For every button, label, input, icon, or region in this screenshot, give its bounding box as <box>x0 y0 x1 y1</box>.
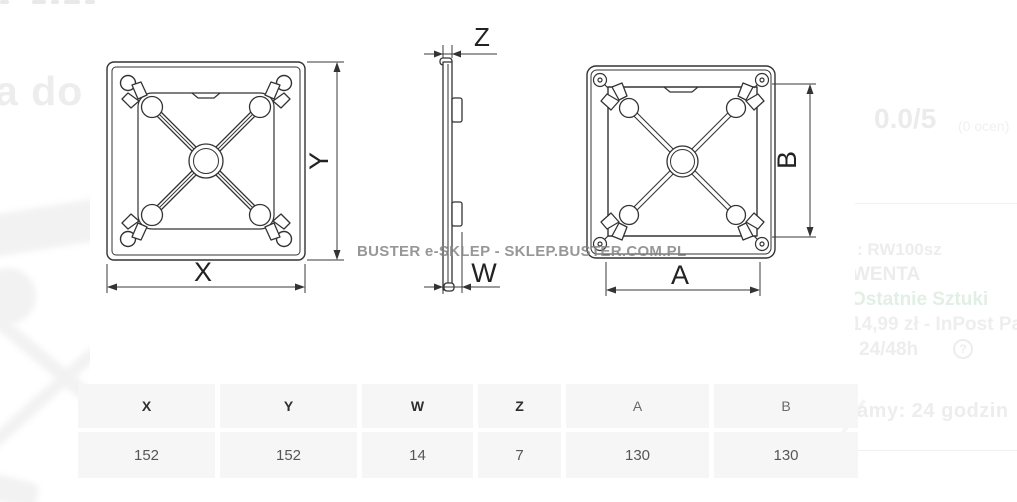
product-sku: : RW100sz <box>857 240 942 260</box>
product-brand: WENTA <box>855 264 920 286</box>
dimensions-table-header-row: X Y W Z A B <box>78 384 858 428</box>
dim-label-z: Z <box>474 22 490 52</box>
dispatch-info: łamy: 24 godzin <box>855 400 1009 423</box>
technical-drawing: X Y Z W <box>0 0 860 370</box>
dim-value-w: 14 <box>362 432 473 478</box>
product-info-ghost-panel: 0.0/5 (0 ocen) : RW100sz WENTA Ostatnie … <box>855 0 1017 502</box>
dim-label-w: W <box>471 258 497 288</box>
dim-label-y: Y <box>304 152 334 170</box>
dim-header-x: X <box>78 384 215 428</box>
delivery-time: 24/48h <box>859 339 918 361</box>
rating-score: 0.0/5 <box>874 103 936 135</box>
dimensions-table-value-row: 152 152 14 7 130 130 <box>78 432 858 478</box>
dim-header-a: A <box>566 384 709 428</box>
dim-header-y: Y <box>220 384 357 428</box>
dimensions-table: X Y W Z A B 152 152 14 7 130 130 <box>78 384 858 482</box>
front-view-clips <box>122 82 290 240</box>
dim-value-x: 152 <box>78 432 215 478</box>
dim-value-a: 130 <box>566 432 709 478</box>
dim-value-y: 152 <box>220 432 357 478</box>
dim-label-x: X <box>194 257 212 287</box>
dim-header-z: Z <box>478 384 561 428</box>
rating-count: (0 ocen) <box>958 118 1009 134</box>
shop-watermark: BUSTER e-SKLEP - SKLEP.BUSTER.COM.PL <box>357 243 686 260</box>
dim-header-w: W <box>362 384 473 428</box>
panel-divider <box>855 450 1017 451</box>
panel-divider <box>855 203 1017 204</box>
dim-value-z: 7 <box>478 432 561 478</box>
dim-label-a: A <box>671 260 689 290</box>
back-view-clips <box>601 83 764 240</box>
help-icon[interactable]: ? <box>953 339 973 359</box>
dim-value-b: 130 <box>714 432 858 478</box>
dim-label-b: B <box>772 151 802 169</box>
dim-header-b: B <box>714 384 858 428</box>
shipping-price: 14,99 zł - InPost Paczk <box>855 314 1017 336</box>
stock-status: Ostatnie Sztuki <box>855 289 988 311</box>
